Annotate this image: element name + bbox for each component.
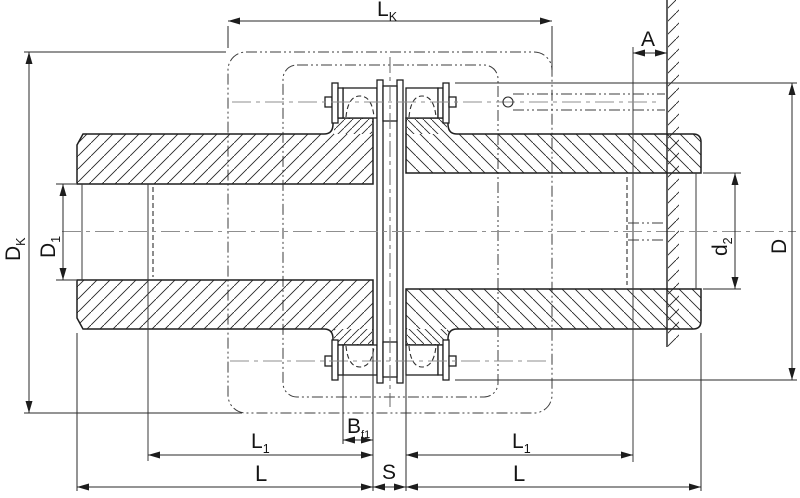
bolt-end-top-left [325,97,332,107]
technical-drawing-coupling: LK A DK D1 d2 D [0,0,800,498]
washer-bottom-left-inner [338,345,343,375]
washer-bottom-right-outer [443,340,449,380]
dim-label-a: A [641,28,655,51]
dim-label-l-right: L [513,461,525,486]
washer-top-right-outer [443,83,449,123]
washer-top-right-inner [438,88,443,118]
dim-label-l-left: L [255,461,267,486]
mounting-wall [667,0,679,347]
washer-top-left-outer [332,83,338,123]
dim-label-s: S [382,461,396,484]
washer-bottom-right-inner [438,345,443,375]
dim-label-d: D [768,239,791,254]
washer-top-left-inner [338,88,343,118]
washer-bottom-left-outer [332,340,338,380]
coupling-section-view: LK A DK D1 d2 D [0,0,800,498]
